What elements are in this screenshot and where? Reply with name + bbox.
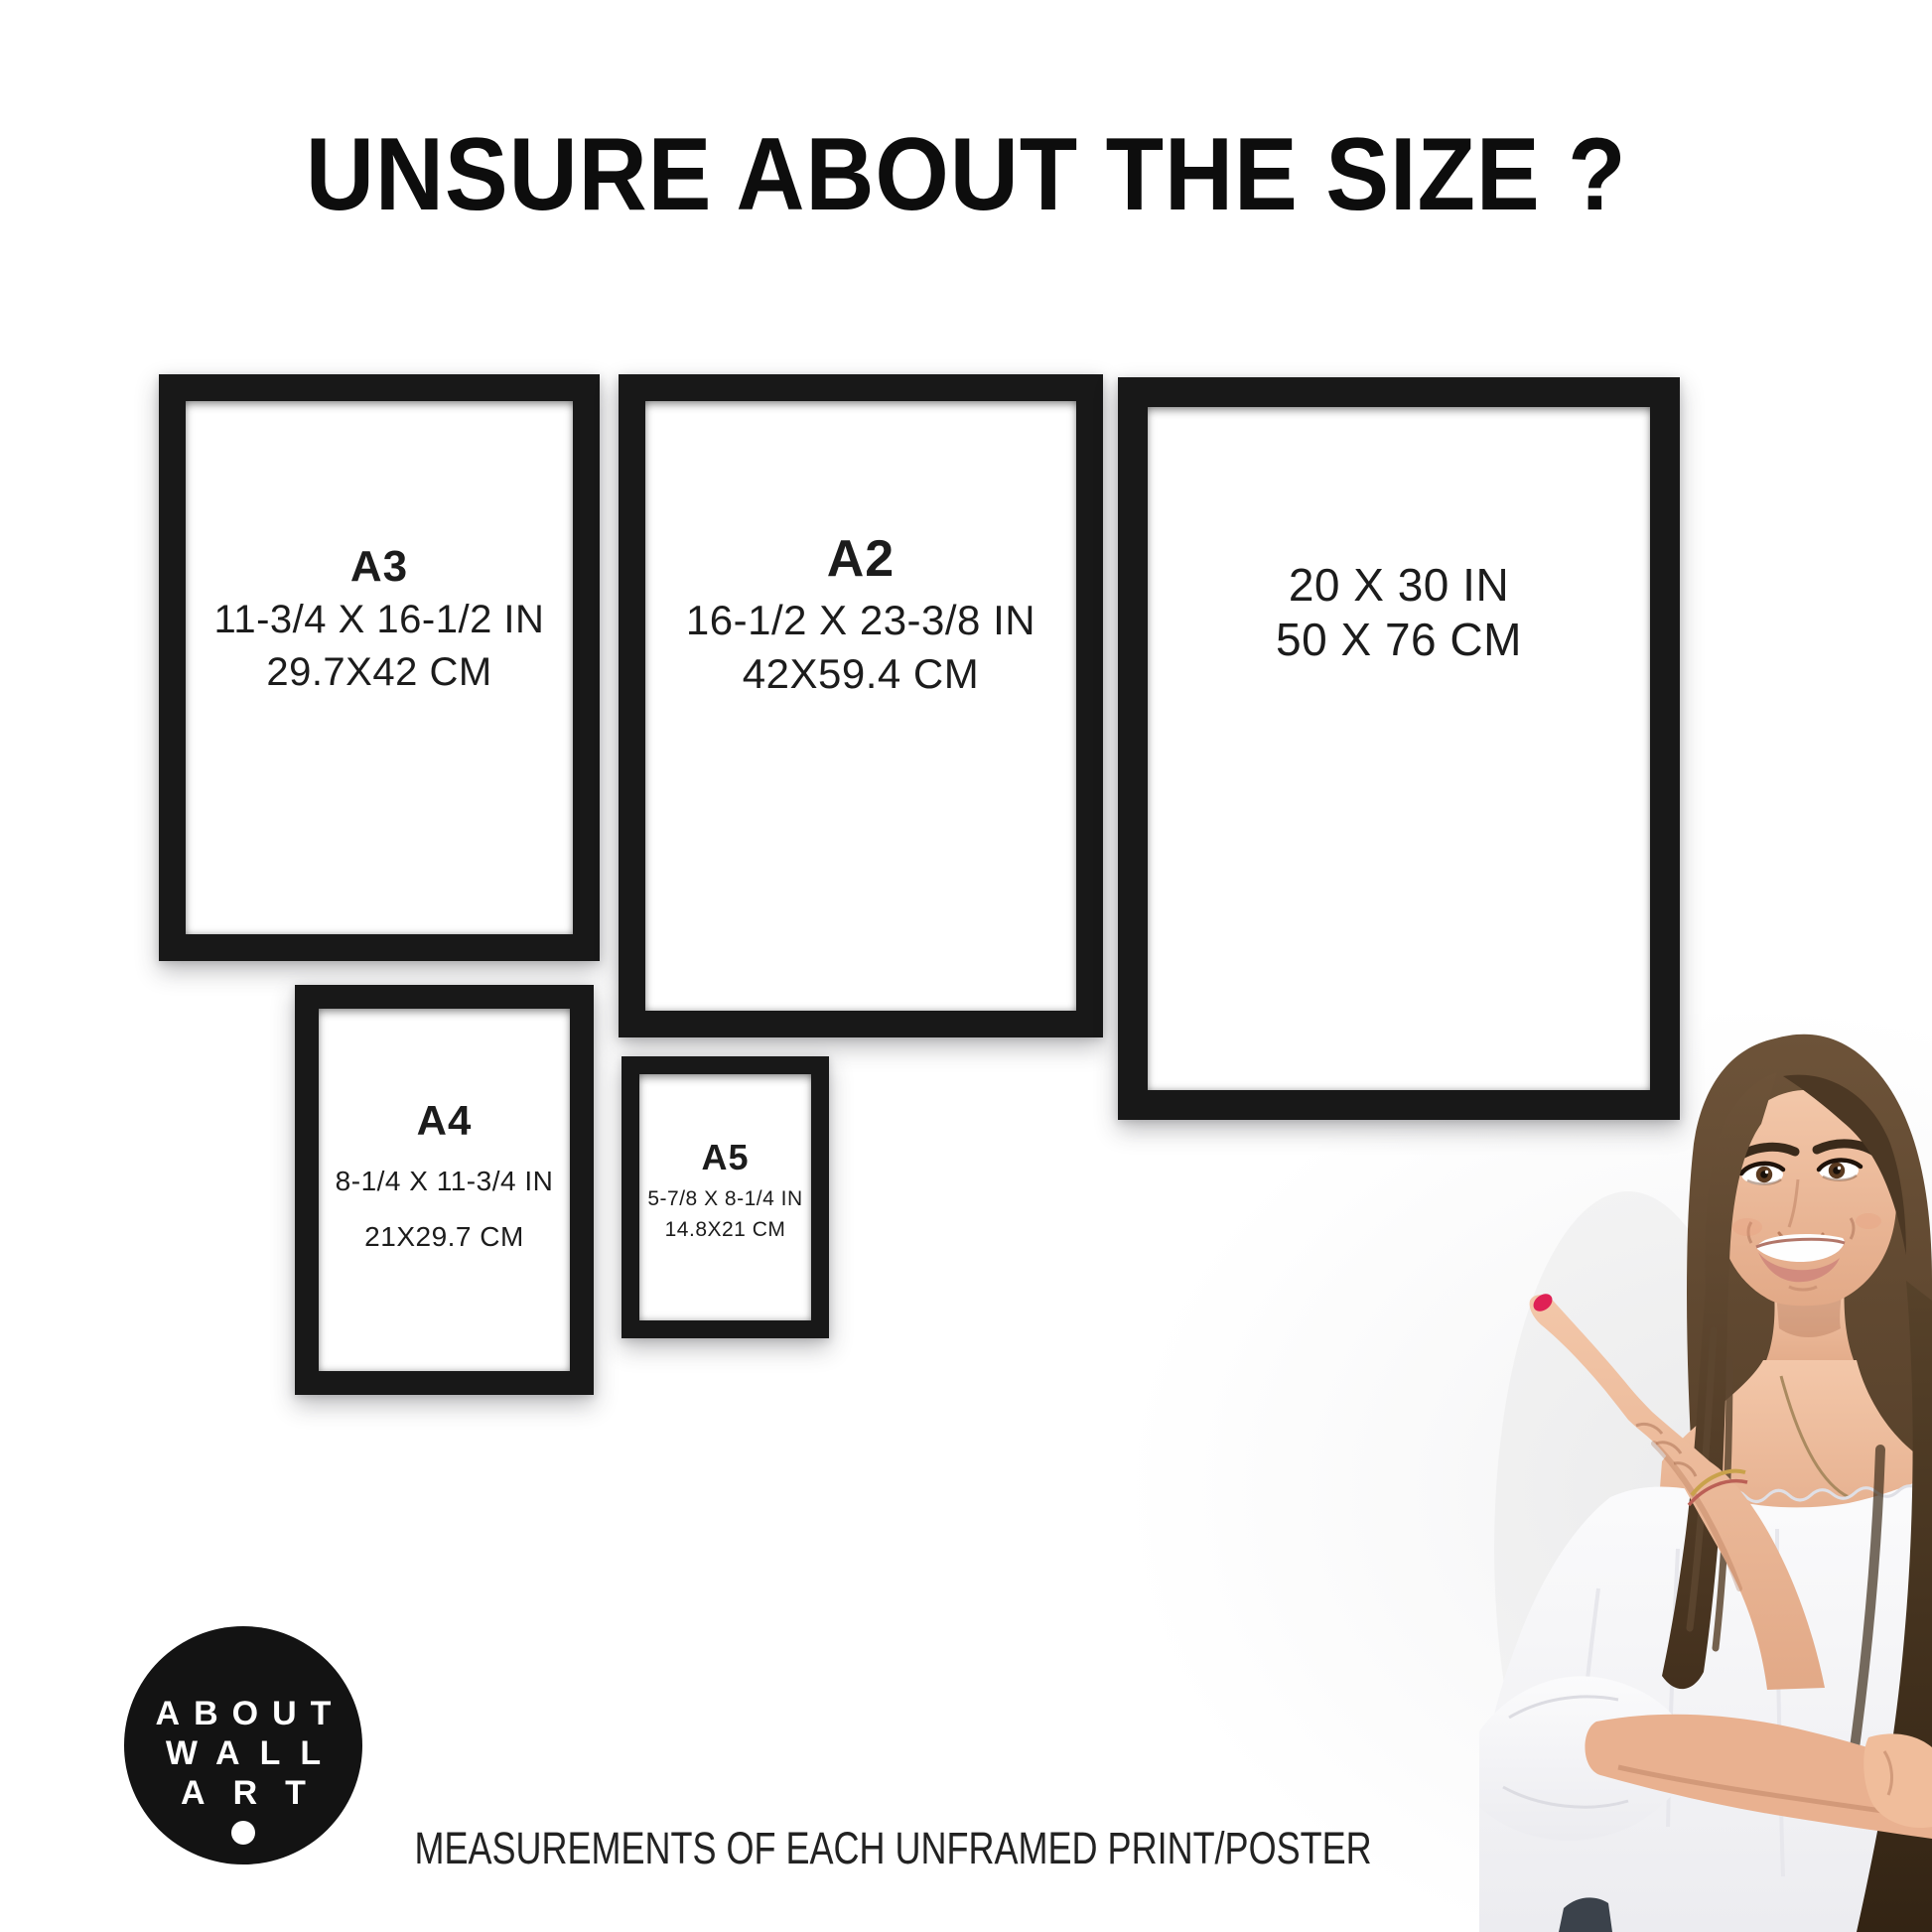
frame-a4-text: A4 8-1/4 X 11-3/4 IN 21X29.7 CM: [319, 1096, 570, 1265]
frame-a2-inches: 16-1/2 X 23-3/8 IN: [645, 594, 1076, 646]
logo-line-1: ABOUT: [124, 1694, 362, 1733]
frame-a3-text: A3 11-3/4 X 16-1/2 IN 29.7X42 CM: [186, 541, 573, 699]
frame-a4-cm: 21X29.7 CM: [319, 1209, 570, 1265]
frame-a4: A4 8-1/4 X 11-3/4 IN 21X29.7 CM: [295, 985, 594, 1395]
frame-20x30-text: 20 X 30 IN 50 X 76 CM: [1148, 558, 1650, 667]
page-title: UNSURE ABOUT THE SIZE ?: [0, 123, 1932, 226]
frame-a2-label: A2: [645, 528, 1076, 590]
frame-a3-label: A3: [186, 541, 573, 594]
frame-a5-label: A5: [639, 1136, 811, 1178]
right-eye: [1819, 1161, 1861, 1180]
left-eye: [1741, 1164, 1783, 1185]
frame-20x30-print: [1148, 407, 1650, 1090]
frame-a3-inches: 11-3/4 X 16-1/2 IN: [186, 594, 573, 646]
footer-text: MEASUREMENTS OF EACH UNFRAMED PRINT/POST…: [415, 1823, 1372, 1874]
frame-a5-cm: 14.8X21 CM: [639, 1215, 811, 1245]
frame-20x30: 20 X 30 IN 50 X 76 CM: [1118, 377, 1680, 1120]
frame-20x30-inches: 20 X 30 IN: [1148, 558, 1650, 613]
frame-a5-inches: 5-7/8 X 8-1/4 IN: [639, 1184, 811, 1214]
frame-a2-text: A2 16-1/2 X 23-3/8 IN 42X59.4 CM: [645, 528, 1076, 700]
logo-line-2: WALL: [124, 1733, 362, 1773]
frame-a2-print: [645, 401, 1076, 1011]
frame-a4-label: A4: [319, 1096, 570, 1146]
frame-a2: A2 16-1/2 X 23-3/8 IN 42X59.4 CM: [619, 374, 1103, 1037]
logo-line-3: ART: [124, 1773, 362, 1813]
frame-a5-text: A5 5-7/8 X 8-1/4 IN 14.8X21 CM: [639, 1136, 811, 1245]
frame-a5: A5 5-7/8 X 8-1/4 IN 14.8X21 CM: [621, 1056, 829, 1338]
frame-20x30-cm: 50 X 76 CM: [1148, 613, 1650, 667]
size-guide-poster: UNSURE ABOUT THE SIZE ? A3 11-3/4 X 16-1…: [0, 0, 1932, 1932]
model-photo: [1479, 1033, 1932, 1932]
page-title-text: UNSURE ABOUT THE SIZE ?: [306, 123, 1627, 226]
frame-a3: A3 11-3/4 X 16-1/2 IN 29.7X42 CM: [159, 374, 600, 961]
frame-a2-cm: 42X59.4 CM: [645, 647, 1076, 700]
frame-a4-inches: 8-1/4 X 11-3/4 IN: [319, 1154, 570, 1209]
frame-a3-cm: 29.7X42 CM: [186, 646, 573, 699]
